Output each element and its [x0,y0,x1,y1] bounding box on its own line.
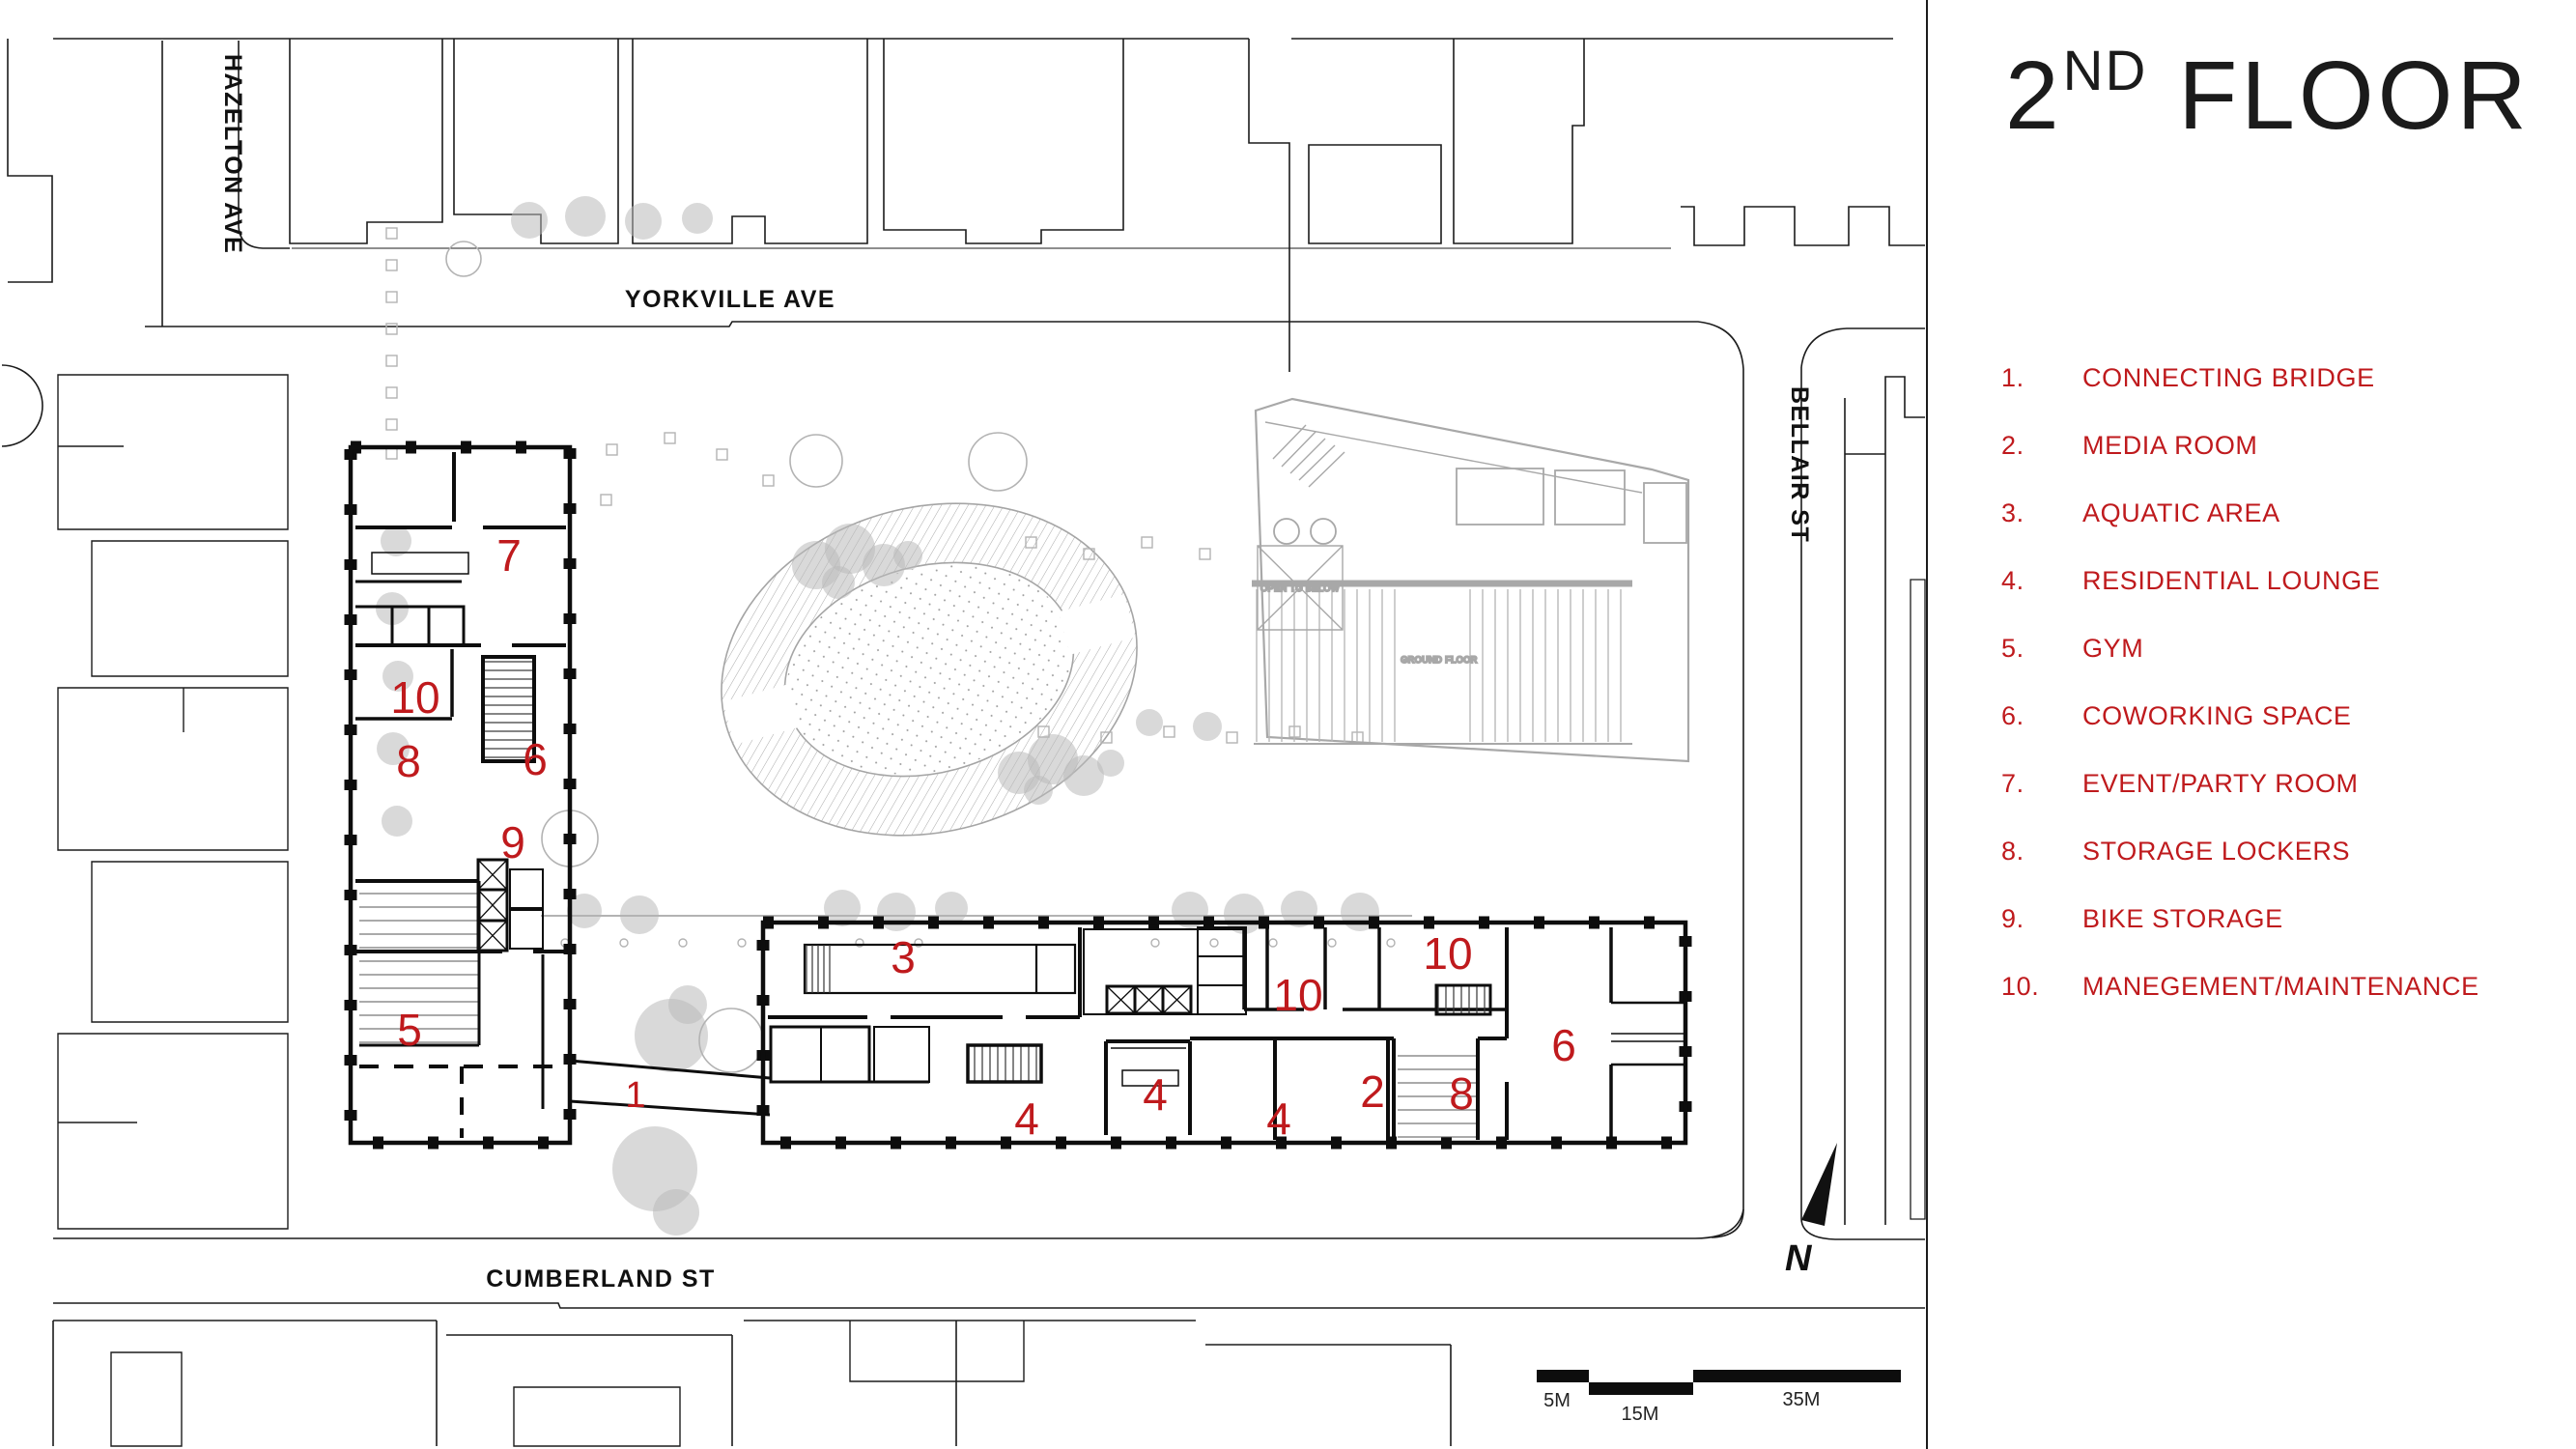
scale-bar: 5M 15M 35M [1537,1370,1901,1425]
legend-item-6: 6.COWORKING SPACE [2001,701,2479,769]
legend-label: GYM [2082,634,2143,664]
floorplan-sheet: OPEN TO BELOW GROUND FLOOR [0,0,2576,1449]
legend-label: AQUATIC AREA [2082,498,2280,528]
room-legend: 1.CONNECTING BRIDGE 2.MEDIA ROOM 3.AQUAT… [2001,363,2479,1039]
room-number-2: 2 [1360,1066,1385,1117]
legend-num: 3. [2001,498,2082,528]
legend-num: 8. [2001,837,2082,867]
room-number-8: 8 [1449,1068,1474,1119]
room-number-6: 6 [523,734,548,784]
legend-label: CONNECTING BRIDGE [2082,363,2375,393]
legend-item-5: 5.GYM [2001,634,2479,701]
room-number-5: 5 [397,1005,422,1055]
north-label: N [1785,1238,1813,1279]
legend-label: RESIDENTIAL LOUNGE [2082,566,2380,596]
connecting-bridge [570,1061,770,1115]
adjacent-building-gray: OPEN TO BELOW GROUND FLOOR [1252,399,1688,761]
legend-label: BIKE STORAGE [2082,904,2283,934]
room-number-7: 7 [496,530,522,581]
floor-word: FLOOR [2147,42,2530,150]
room-number-6: 6 [1551,1020,1576,1070]
lap-pool [805,945,1075,993]
room-number-4: 4 [1143,1069,1168,1120]
room-number-10: 10 [390,672,439,723]
legend-item-7: 7.EVENT/PARTY ROOM [2001,769,2479,837]
room-number-4: 4 [1014,1094,1039,1144]
legend-item-10: 10.MANEGEMENT/MAINTENANCE [2001,972,2479,1039]
west-building [351,447,570,1143]
room-number-3: 3 [891,932,916,982]
legend-label: EVENT/PARTY ROOM [2082,769,2359,799]
room-number-1: 1 [625,1075,645,1116]
stair-south [968,1045,1041,1082]
legend-label: MEDIA ROOM [2082,431,2258,461]
street-label-bellair: BELLAIR ST [1786,386,1813,543]
floor-number: 2 [2005,42,2063,150]
room-number-9: 9 [500,817,525,867]
street-label-hazelton: HAZELTON AVE [219,54,246,254]
oval-garden [684,458,1175,880]
legend-num: 5. [2001,634,2082,664]
elevator-core [478,860,507,951]
scale-label-5m: 5M [1543,1390,1571,1411]
north-arrow: N [1785,1143,1837,1279]
legend-item-2: 2.MEDIA ROOM [2001,431,2479,498]
room-number-8: 8 [396,736,421,786]
scale-label-15m: 15M [1622,1404,1659,1425]
legend-num: 9. [2001,904,2082,934]
room-number-10: 10 [1273,970,1322,1020]
washrooms-west [771,1027,929,1082]
stair-southeast [1436,985,1490,1014]
street-label-yorkville: YORKVILLE AVE [625,286,835,313]
legend-label: STORAGE LOCKERS [2082,837,2350,867]
legend-label: MANEGEMENT/MAINTENANCE [2082,972,2479,1002]
floor-ordinal: ND [2063,40,2148,102]
elevator-core-south [1107,986,1191,1013]
scale-label-35m: 35M [1783,1389,1821,1410]
legend-num: 4. [2001,566,2082,596]
legend-item-3: 3.AQUATIC AREA [2001,498,2479,566]
legend-num: 10. [2001,972,2082,1002]
open-to-below-label: OPEN TO BELOW [1260,583,1340,593]
page-title: 2ND FLOOR [2005,39,2531,152]
legend-num: 1. [2001,363,2082,393]
legend-num: 7. [2001,769,2082,799]
legend-item-9: 9.BIKE STORAGE [2001,904,2479,972]
street-label-cumberland: CUMBERLAND ST [486,1265,716,1293]
ground-floor-label: GROUND FLOOR [1401,655,1478,665]
legend-num: 6. [2001,701,2082,731]
room-number-10: 10 [1423,928,1472,979]
legend-item-8: 8.STORAGE LOCKERS [2001,837,2479,904]
floor-plan-canvas: OPEN TO BELOW GROUND FLOOR [0,0,1932,1449]
legend-label: COWORKING SPACE [2082,701,2352,731]
legend-item-4: 4.RESIDENTIAL LOUNGE [2001,566,2479,634]
legend-item-1: 1.CONNECTING BRIDGE [2001,363,2479,431]
legend-num: 2. [2001,431,2082,461]
room-number-4: 4 [1266,1094,1291,1144]
